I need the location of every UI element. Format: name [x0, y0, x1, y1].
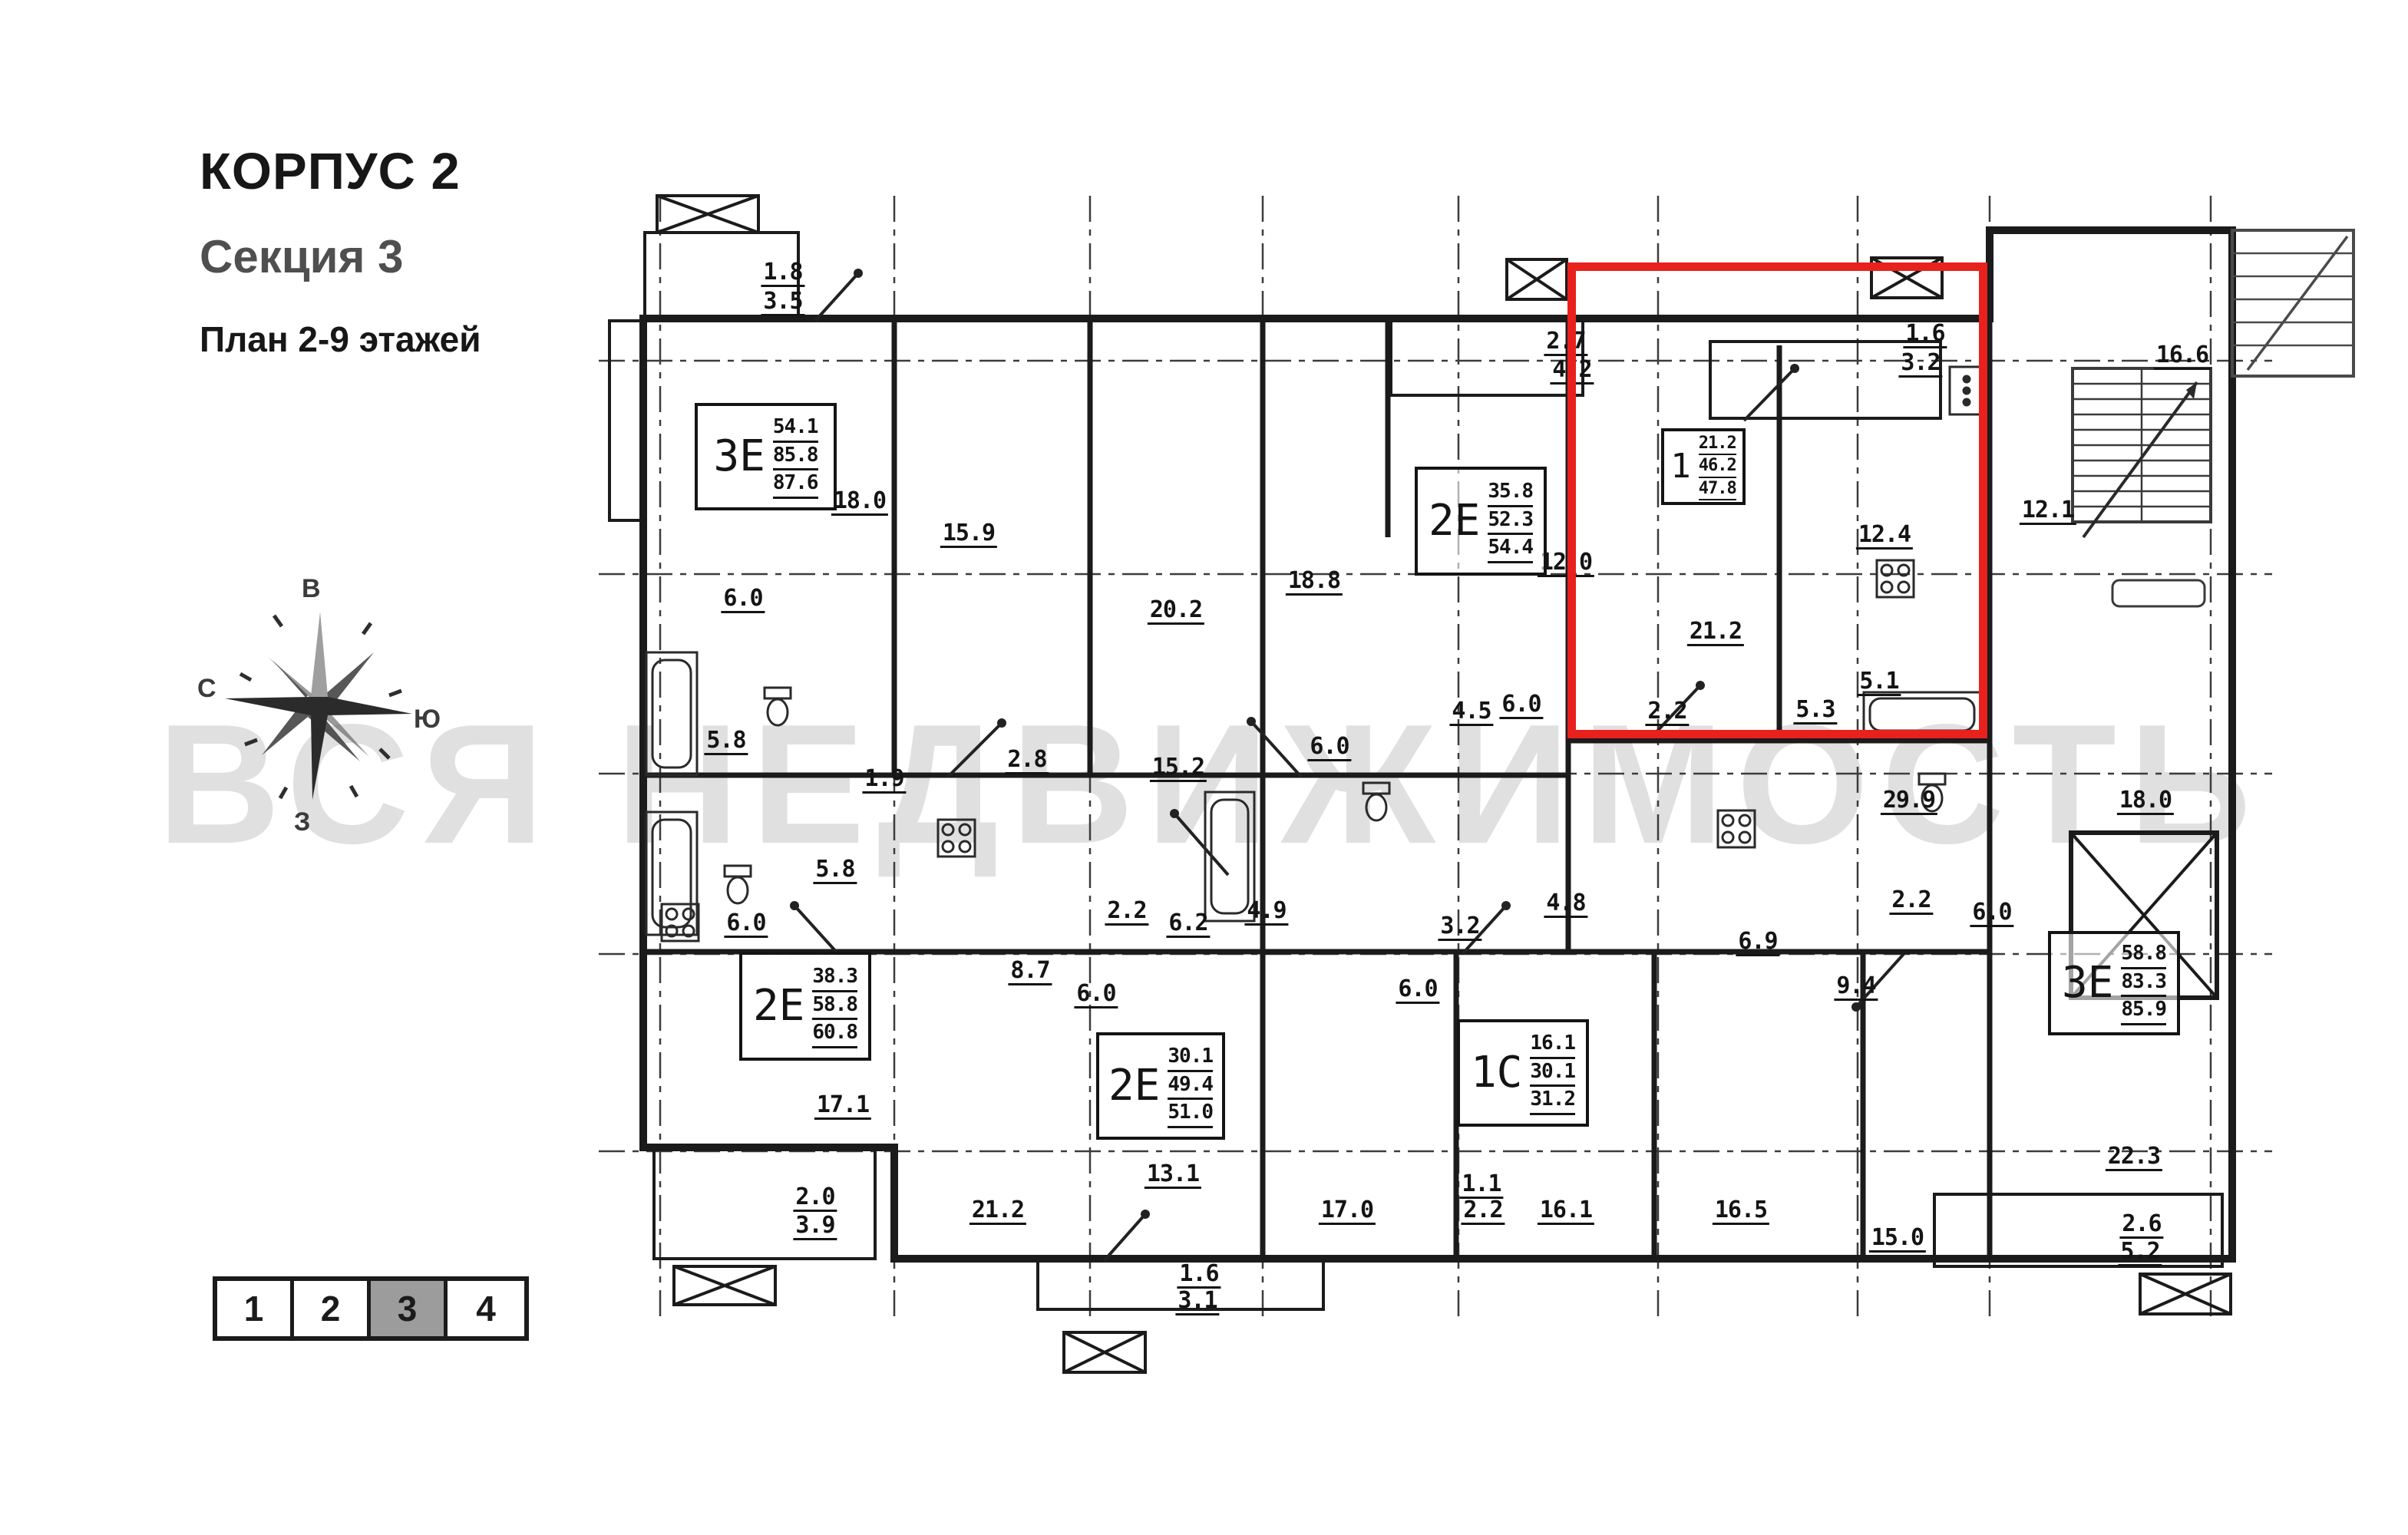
apartment-label[interactable]: 2Е30.149.451.0 [1096, 1032, 1225, 1140]
room-area-label: 6.0 [1970, 901, 2013, 927]
neighbour-section-hatch [2232, 230, 2353, 376]
room-area-label: 1.9 [862, 767, 906, 794]
compass-letter-west: З [294, 807, 310, 837]
page: { "header": { "building": "КОРПУС 2", "s… [0, 0, 2408, 1535]
section-tab-3[interactable]: 3 [371, 1281, 448, 1336]
apartment-areas: 38.358.860.8 [812, 964, 857, 1048]
apartment-area-value: 30.1 [1530, 1059, 1575, 1088]
room-area-label: 5.2 [2118, 1240, 2162, 1266]
room-area-label: 9.4 [1834, 975, 1878, 1001]
apartment-area-value: 58.8 [812, 992, 857, 1021]
room-area-label: 17.0 [1319, 1199, 1376, 1225]
room-area-label: 20.2 [1148, 599, 1204, 625]
room-area-label: 6.2 [1166, 912, 1210, 938]
room-area-label: 5.8 [813, 858, 857, 884]
apartment-area-value: 83.3 [2121, 969, 2166, 998]
room-area-label: 18.0 [2117, 789, 2174, 815]
apartment-type: 1С [1471, 1051, 1522, 1094]
apartment-area-value: 38.3 [812, 964, 857, 992]
apartment-label[interactable]: 2Е38.358.860.8 [739, 952, 871, 1061]
apartment-area-value: 54.1 [773, 414, 818, 443]
room-area-label: 18.8 [1286, 569, 1343, 596]
toilet-icon [1363, 783, 1389, 820]
outer-walls [643, 230, 2232, 1259]
room-area-label: 5.8 [704, 729, 748, 755]
room-area-label: 6.0 [1307, 735, 1351, 761]
neighbour-wall-stub [609, 321, 643, 520]
room-area-label: 29.9 [1881, 789, 1937, 815]
apartment-label[interactable]: 3Е58.883.385.9 [2048, 931, 2180, 1035]
compass-letter-east: В [302, 574, 321, 604]
bathtub-icon [646, 812, 697, 935]
apartment-type: 2Е [1429, 500, 1480, 543]
compass-star-major-light [311, 612, 328, 697]
compass-letter-north: С [197, 674, 216, 704]
apartment-area-value: 60.8 [812, 1020, 857, 1048]
section-tab-1[interactable]: 1 [217, 1281, 294, 1336]
apartment-area-value: 16.1 [1530, 1031, 1575, 1059]
apartment-type: 2Е [1108, 1065, 1160, 1108]
apartment-area-value: 30.1 [1168, 1044, 1213, 1072]
room-area-label: 16.5 [1713, 1199, 1769, 1225]
section-title: Секция 3 [200, 230, 481, 283]
apartment-area-value: 31.2 [1530, 1087, 1575, 1115]
apartment-label[interactable]: 1С16.130.131.2 [1457, 1019, 1589, 1127]
apartment-area-value: 49.4 [1168, 1072, 1213, 1101]
room-area-label: 1.8 [761, 261, 804, 287]
compass-letter-south: Ю [414, 705, 441, 734]
room-area-label: 3.9 [793, 1214, 837, 1240]
room-area-label: 6.0 [1396, 978, 1439, 1004]
apartment-label[interactable]: 3Е54.185.887.6 [695, 403, 837, 510]
floors-plan-title: План 2-9 этажей [200, 319, 481, 360]
apartment-label[interactable]: 2Е35.852.354.4 [1415, 467, 1547, 576]
apartment-areas: 54.185.887.6 [773, 414, 818, 499]
room-area-label: 15.9 [940, 522, 997, 548]
apartment-areas: 58.883.385.9 [2121, 941, 2166, 1025]
room-area-label: 21.2 [969, 1199, 1026, 1225]
room-area-label: 2.8 [1005, 748, 1049, 774]
room-area-label: 6.0 [721, 587, 765, 613]
room-area-label: 22.3 [2106, 1145, 2162, 1171]
section-tab-4[interactable]: 4 [448, 1281, 524, 1336]
section-selector: 1 2 3 4 [213, 1276, 529, 1341]
room-area-label: 3.2 [1438, 915, 1481, 941]
apartment-area-value: 58.8 [2121, 941, 2166, 969]
room-area-label: 4.8 [1544, 892, 1587, 918]
room-area-label: 2.2 [1889, 889, 1933, 915]
bathtub-icon [646, 652, 697, 775]
apartment-area-value: 52.3 [1488, 507, 1533, 536]
room-area-label: 2.2 [1105, 900, 1148, 926]
stove-icon [1718, 810, 1755, 847]
compass-star-icon [196, 568, 441, 844]
room-area-label: 16.1 [1538, 1199, 1594, 1225]
toilet-icon [765, 688, 791, 725]
room-area-label: 6.0 [1499, 693, 1543, 719]
apartment-area-value: 85.8 [773, 443, 818, 471]
toilet-icon [725, 866, 751, 903]
title-block: КОРПУС 2 Секция 3 План 2-9 этажей [200, 142, 481, 360]
apartment-area-value: 35.8 [1488, 479, 1533, 507]
room-area-label: 1.6 [1177, 1263, 1221, 1289]
room-area-label: 4.9 [1244, 900, 1288, 926]
room-area-label: 18.0 [831, 490, 888, 516]
room-area-label: 8.7 [1008, 959, 1052, 985]
apartment-areas: 16.130.131.2 [1530, 1031, 1575, 1115]
room-area-label: 1.1 [1459, 1173, 1503, 1199]
stove-icon [938, 820, 975, 857]
room-area-label: 15.0 [1869, 1226, 1926, 1253]
room-area-label: 15.2 [1150, 756, 1207, 782]
apartment-area-value: 87.6 [773, 470, 818, 499]
room-area-label: 2.6 [2119, 1213, 2163, 1239]
staircase [2073, 368, 2211, 606]
highlighted-apartment-outline [1567, 262, 1987, 738]
room-area-label: 6.0 [1074, 982, 1118, 1008]
apartment-area-value: 85.9 [2121, 997, 2166, 1025]
room-area-label: 12.1 [2020, 499, 2076, 525]
room-area-label: 2.0 [793, 1186, 837, 1212]
room-area-label: 17.1 [814, 1094, 871, 1120]
apartment-type: 2Е [753, 985, 804, 1028]
apartment-area-value: 54.4 [1488, 535, 1533, 563]
apartment-areas: 35.852.354.4 [1488, 479, 1533, 563]
room-area-label: 2.2 [1461, 1199, 1505, 1225]
room-area-label: 4.5 [1449, 700, 1493, 726]
room-area-label: 3.1 [1175, 1289, 1219, 1315]
apartment-type: 3Е [713, 435, 765, 478]
room-area-label: 3.5 [761, 290, 804, 316]
compass-rose: В С Ю З [196, 568, 441, 844]
building-title: КОРПУС 2 [200, 142, 481, 201]
room-area-label: 13.1 [1145, 1163, 1201, 1189]
apartment-area-value: 51.0 [1168, 1100, 1213, 1128]
apartment-type: 3Е [2062, 962, 2113, 1005]
room-area-label: 6.0 [724, 912, 768, 938]
section-tab-2[interactable]: 2 [294, 1281, 371, 1336]
room-area-label: 6.9 [1736, 930, 1779, 956]
room-area-label: 16.6 [2154, 344, 2211, 370]
apartment-areas: 30.149.451.0 [1168, 1044, 1213, 1128]
